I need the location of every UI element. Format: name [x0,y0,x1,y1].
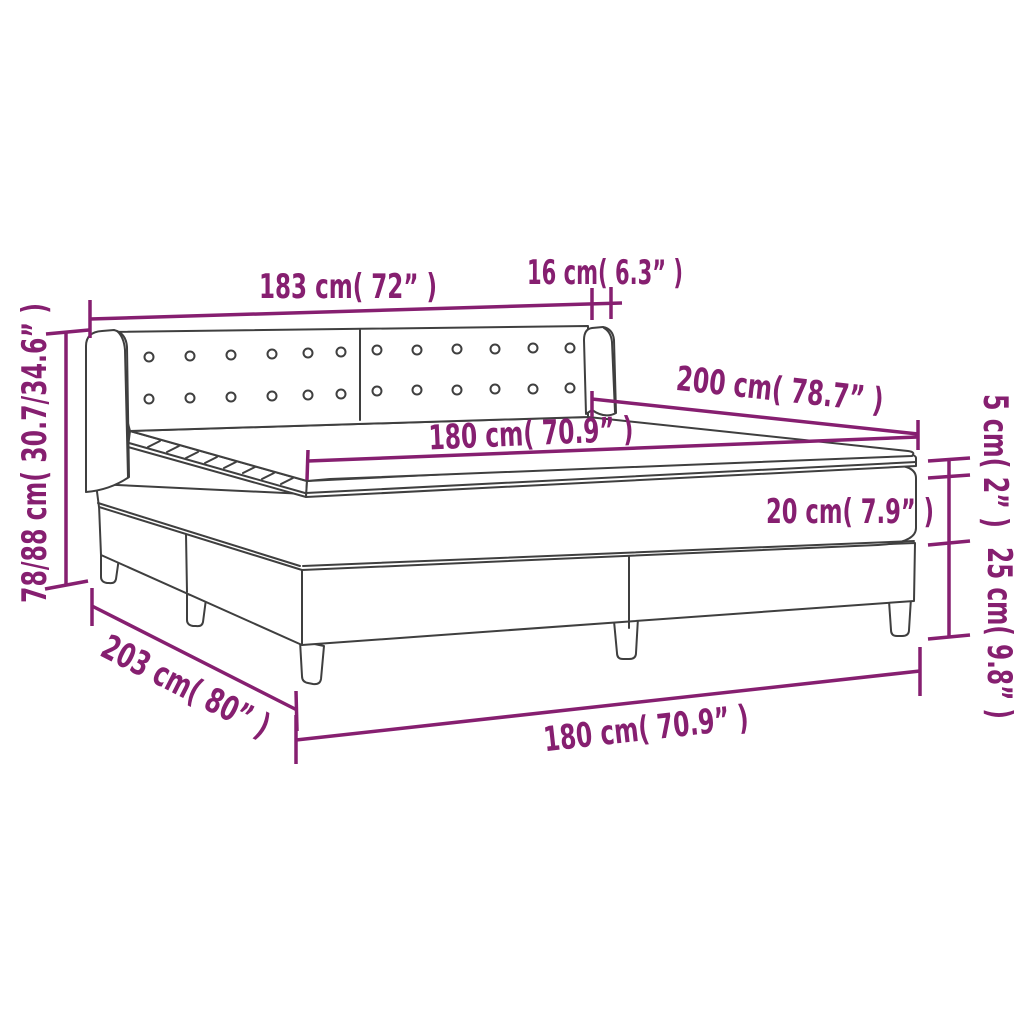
headboard-button [268,392,277,401]
headboard-button [186,394,195,403]
headboard-button [413,386,422,395]
headboard-button [453,386,462,395]
dim-tick [928,635,970,639]
headboard-button [337,348,346,357]
headboard-button [491,345,500,354]
bed-dimension-drawing: 183 cm( 72” ) 16 cm( 6.3” ) 200 cm( 78.7… [0,0,1024,1024]
dim-base-width-label: 180 cm( 70.9” ) [542,698,751,760]
headboard-button [145,353,154,362]
dim-mattress-thickness-label: 20 cm( 7.9” ) [766,492,934,532]
headboard-button [304,391,313,400]
dim-base-height-label: 25 cm( 9.8” ) [979,547,1019,719]
headboard-button [227,393,236,402]
headboard-button [566,344,575,353]
headboard-button [529,344,538,353]
headboard-button [337,390,346,399]
headboard-button [268,350,277,359]
bed-leg [614,618,638,659]
headboard-button [373,387,382,396]
headboard-button [453,345,462,354]
headboard-button [491,385,500,394]
bed-leg [889,598,911,636]
headboard-button [304,349,313,358]
dim-tick [928,541,970,545]
headboard-button [227,351,236,360]
headboard-button [529,385,538,394]
headboard-button [413,346,422,355]
headboard-button [186,352,195,361]
dim-tick [307,450,308,480]
dim-wing-depth-label: 16 cm( 6.3” ) [527,253,683,293]
dim-tick [928,458,970,461]
base-box-side-seam [186,534,187,592]
dim-overall-height-label: 78/88 cm( 30.7/34.6” ) [15,303,55,603]
headboard-left-wing [86,330,129,492]
headboard-button [373,346,382,355]
dim-topper-thickness-label: 5 cm( 2” ) [975,394,1015,528]
headboard-button [566,384,575,393]
product-dimension-diagram: 183 cm( 72” ) 16 cm( 6.3” ) 200 cm( 78.7… [0,0,1024,1024]
dim-tick [928,475,970,478]
headboard-button [145,395,154,404]
bed-leg [300,641,324,684]
dim-headboard-width-label: 183 cm( 72” ) [259,267,437,307]
